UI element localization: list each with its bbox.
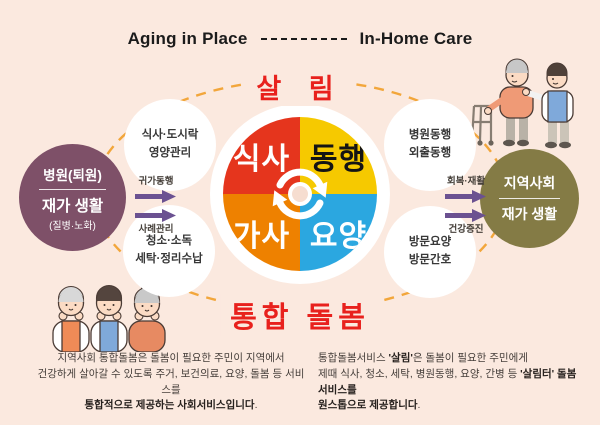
node-left-line3: (질병·노화) bbox=[49, 217, 96, 232]
label-integrated-care: 통합 돌봄 bbox=[220, 294, 380, 336]
node-left-line1: 병원(퇴원) bbox=[43, 164, 102, 184]
arrow-right-icon bbox=[445, 208, 487, 223]
desc-right-line1-post: 은 돌봄이 필요한 주민에게 bbox=[413, 352, 528, 364]
service-cycle-pie: 식사 동행 가사 요양 bbox=[210, 104, 390, 284]
right-arrow-bottom-label: 건강증진 bbox=[449, 225, 484, 235]
desc-right-line3-bold: 원스톱으로 제공합니다 bbox=[318, 399, 418, 411]
cycle-arrows-icon bbox=[260, 154, 340, 234]
desc-right-line1-pre: 통합돌봄서비스 bbox=[318, 352, 389, 364]
arrow-right-icon bbox=[135, 208, 177, 223]
bubble-nursing-line1: 방문요양 bbox=[409, 234, 451, 252]
desc-right-line3-end: . bbox=[418, 399, 421, 411]
desc-left-line3-end: . bbox=[255, 399, 258, 411]
desc-right-line1-bold: '살림' bbox=[389, 352, 413, 364]
caregiver-walker-illustration bbox=[460, 56, 588, 150]
right-arrow-group: 회복·재활 건강증진 bbox=[443, 177, 489, 234]
desc-right-line2-pre: 제때 식사, 청소, 세탁, 병원동행, 요양, 간병 등 bbox=[318, 368, 520, 380]
title-dashed-line bbox=[261, 38, 347, 40]
label-salim: 살 림 bbox=[246, 67, 353, 106]
bubble-housework-line1: 청소·소독 bbox=[146, 233, 192, 251]
desc-left-line1: 지역사회 통합돌봄은 돌봄이 필요한 주민이 지역에서 bbox=[57, 352, 284, 364]
description-salim-service: 통합돌봄서비스 '살림'은 돌봄이 필요한 주민에게 제때 식사, 청소, 세탁… bbox=[318, 351, 582, 414]
arrow-right-icon bbox=[135, 189, 177, 204]
node-hospital-discharge: 병원(퇴원) 재가 생활 (질병·노화) bbox=[19, 144, 126, 251]
node-community-life: 지역사회 재가 생활 bbox=[480, 149, 579, 248]
node-right-divider bbox=[499, 198, 560, 199]
left-arrow-group: 귀가동행 사례관리 bbox=[133, 177, 179, 234]
title-in-home-care: In-Home Care bbox=[360, 29, 473, 49]
header: Aging in Place In-Home Care bbox=[0, 29, 600, 49]
right-arrow-top-label: 회복·재활 bbox=[447, 177, 485, 187]
bubble-housework-line2: 세탁·정리수납 bbox=[135, 251, 202, 269]
description-community-care: 지역사회 통합돌봄은 돌봄이 필요한 주민이 지역에서 건강하게 살아갈 수 있… bbox=[36, 351, 306, 414]
left-arrow-top-label: 귀가동행 bbox=[139, 177, 174, 187]
infographic-community-care: Aging in Place In-Home Care 살 림 통합 돌봄 식사… bbox=[0, 0, 600, 425]
node-right-line1: 지역사회 bbox=[504, 173, 556, 193]
bubble-meal-line2: 영양관리 bbox=[149, 145, 191, 163]
arrow-right-icon bbox=[445, 189, 487, 204]
node-right-line2: 재가 생활 bbox=[502, 204, 557, 224]
bubble-accompany-line1: 병원동행 bbox=[409, 127, 451, 145]
title-aging-in-place: Aging in Place bbox=[128, 29, 248, 49]
bubble-accompany-line2: 외출동행 bbox=[409, 145, 451, 163]
node-left-divider bbox=[39, 189, 105, 190]
desc-left-line2: 건강하게 살아갈 수 있도록 주거, 보건의료, 요양, 돌봄 등 서비스를 bbox=[38, 368, 305, 396]
bubble-nursing-line2: 방문간호 bbox=[409, 252, 451, 270]
node-left-line2: 재가 생활 bbox=[42, 194, 103, 216]
desc-left-line3-bold: 통합적으로 제공하는 사회서비스입니다 bbox=[85, 399, 255, 411]
bubble-meal-line1: 식사·도시락 bbox=[142, 127, 199, 145]
left-arrow-bottom-label: 사례관리 bbox=[139, 225, 174, 235]
